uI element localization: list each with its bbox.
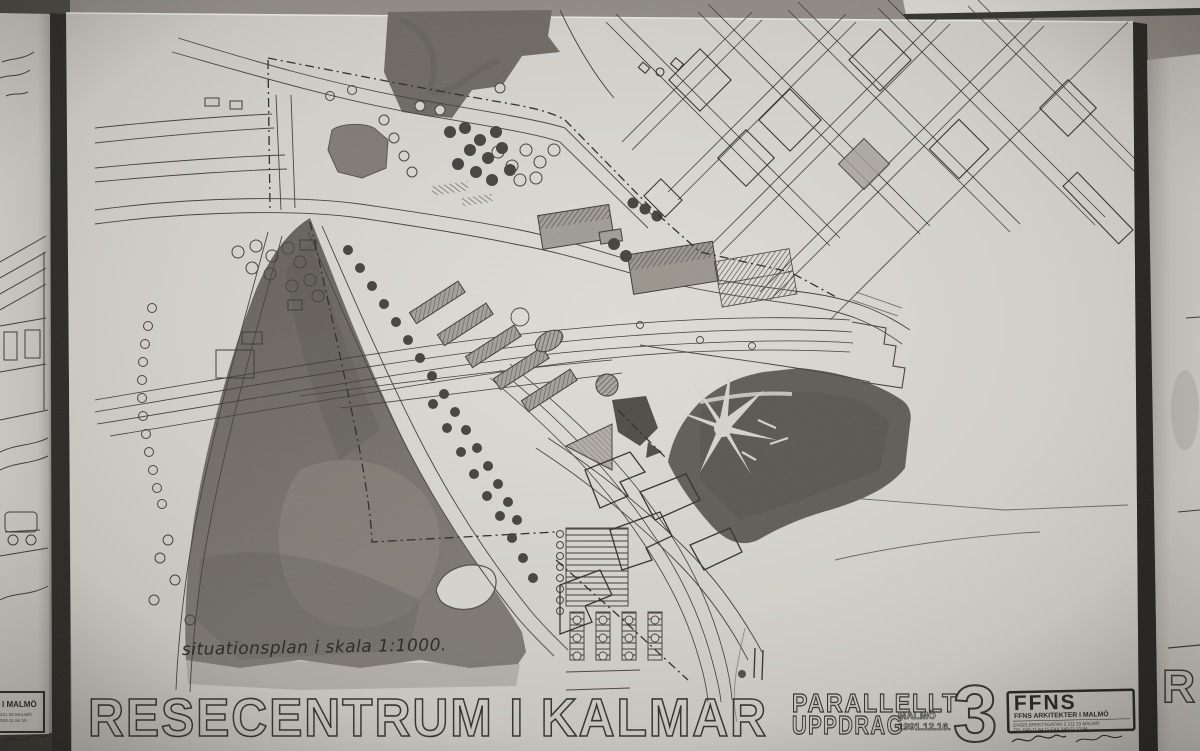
vignette-overlay <box>0 0 1200 751</box>
scene: I MALMÖ 211 33 MALMÖ 040-11 84 15 <box>0 0 1200 751</box>
photo-of-architecture-boards: I MALMÖ 211 33 MALMÖ 040-11 84 15 <box>0 0 1200 751</box>
